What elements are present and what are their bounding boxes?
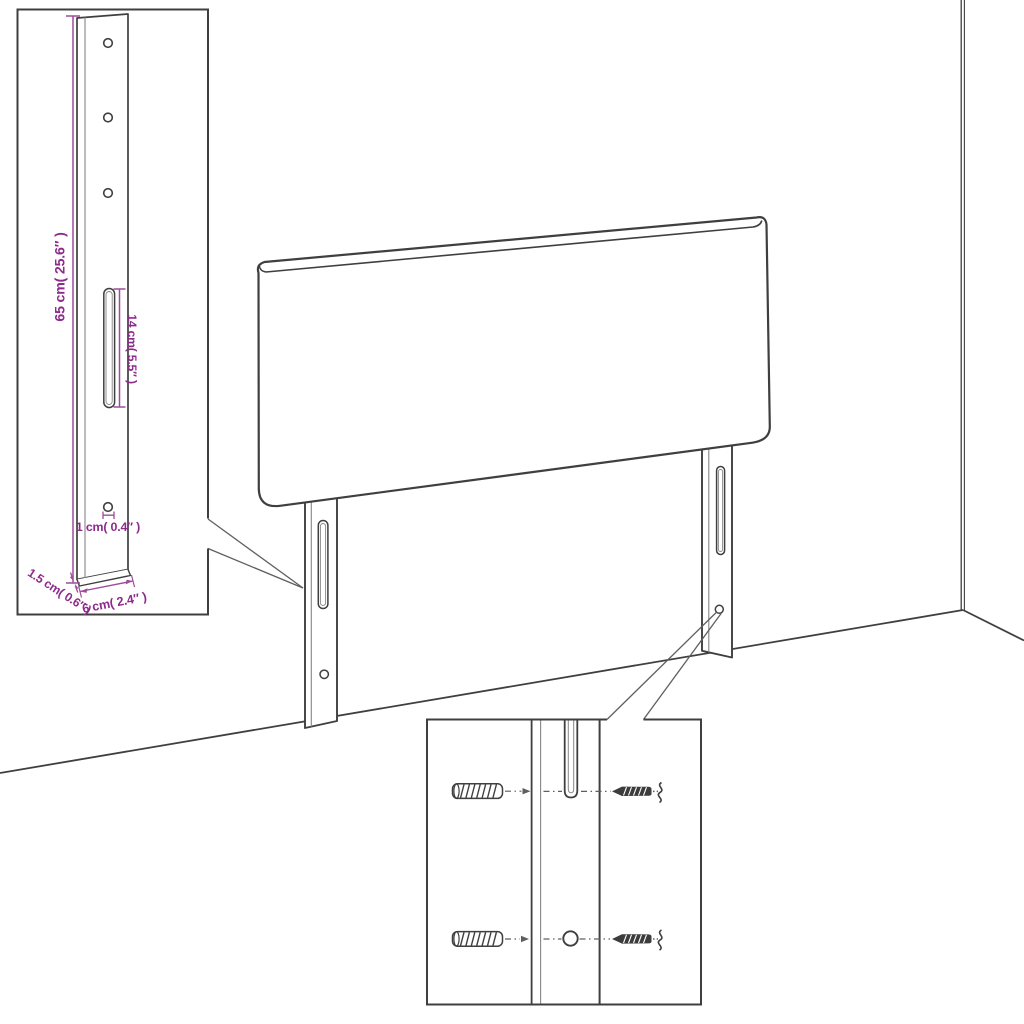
leg-detail-callout-lines	[208, 519, 303, 588]
right-leg	[702, 437, 732, 658]
wall-plug-icon	[453, 784, 503, 799]
slot-length-label: 14 cm( 5.5″ )	[125, 314, 139, 384]
wall-plug-collar	[454, 932, 459, 946]
fastener-row-top	[453, 783, 662, 803]
hole-diameter-label: 1 cm( 0.4″ )	[76, 520, 140, 534]
leg-strip-slot-inner	[568, 721, 573, 793]
wall-plug-ribs	[461, 785, 497, 799]
guide-arrowhead	[521, 936, 529, 942]
arrowhead	[80, 588, 88, 593]
left-leg-hole	[320, 670, 328, 678]
guide-arrowhead	[523, 788, 531, 794]
enlarged-leg-slot	[104, 289, 115, 408]
callout-line	[644, 613, 722, 719]
leg-strip-hole	[563, 931, 577, 945]
enlarged-leg-hole-1	[104, 39, 113, 48]
screw-icon	[612, 930, 662, 950]
enlarged-leg-hole-3	[104, 189, 113, 198]
callout-line	[208, 549, 303, 589]
right-leg-slot	[717, 467, 725, 555]
wall-plug-icon	[453, 932, 503, 947]
floor-line-left	[0, 610, 963, 773]
leg-width-label: 6 cm( 2.4″ )	[81, 590, 148, 616]
arrowhead	[126, 580, 133, 585]
screw-head-squiggle	[658, 930, 662, 950]
leg-height-label: 65 cm( 25.6″ )	[52, 232, 68, 322]
panel-outline	[258, 217, 770, 506]
mounting-detail-inset	[427, 720, 701, 1005]
enlarged-leg-hole-2	[104, 113, 113, 122]
mounting-leg-strip	[532, 721, 600, 1004]
floor-line-right	[963, 610, 1024, 641]
screw-icon	[612, 783, 662, 803]
leg-detail-inset: 65 cm( 25.6″ ) 14 cm( 5.5″ ) 1 cm( 0.4″ …	[18, 10, 209, 618]
enlarged-leg	[77, 14, 131, 586]
callout-line	[208, 519, 303, 588]
fastener-row-bottom	[453, 930, 662, 950]
screw-head-squiggle	[658, 783, 662, 803]
dimension-leg-height: 65 cm( 25.6″ )	[52, 16, 80, 583]
wall-plug-collar	[454, 784, 459, 798]
wall-plug-ribs	[461, 932, 497, 946]
enlarged-leg-hole-4	[104, 503, 113, 512]
left-leg-slot	[318, 521, 328, 609]
diagram-page: 65 cm( 25.6″ ) 14 cm( 5.5″ ) 1 cm( 0.4″ …	[0, 0, 1024, 1024]
diagram-canvas: 65 cm( 25.6″ ) 14 cm( 5.5″ ) 1 cm( 0.4″ …	[0, 0, 1024, 1024]
left-leg	[305, 490, 337, 728]
headboard-panel	[258, 217, 770, 506]
leg-strip-slot	[565, 721, 578, 798]
callout-line	[607, 612, 717, 720]
